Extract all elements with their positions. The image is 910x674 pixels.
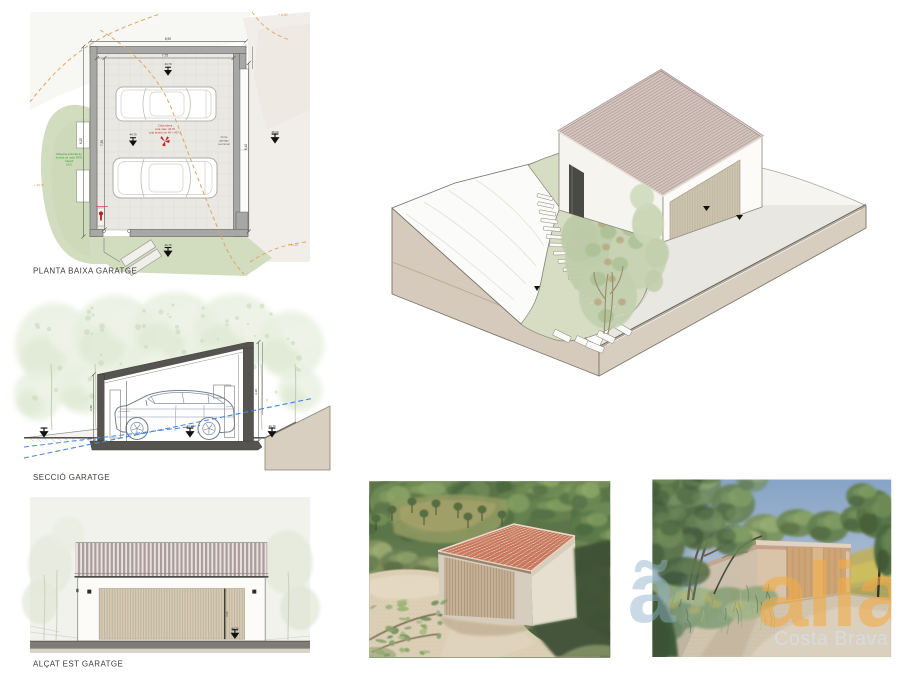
svg-text:8,90: 8,90 [165,37,171,41]
svg-text:7,30: 7,30 [100,140,104,146]
svg-text:44,70: 44,70 [187,424,194,428]
svg-text:6,40: 6,40 [244,144,248,150]
svg-text:seccional: seccional [218,142,230,146]
svg-text:44,70: 44,70 [165,243,172,247]
svg-text:cota àmbit mín 46 + 437,5: cota àmbit mín 46 + 437,5 [149,131,182,135]
svg-text:2,50: 2,50 [89,405,93,411]
svg-text:3,20: 3,20 [254,389,258,395]
svg-text:Costa Brava: Costa Brava [774,628,889,650]
svg-text:45,00: 45,00 [272,130,279,134]
svg-text:44,70: 44,70 [165,62,172,66]
svg-text:44,70: 44,70 [269,424,276,428]
svg-text:6,20: 6,20 [79,138,83,144]
svg-text:+ 4.00: + 4.00 [278,13,288,17]
svg-text:ã: ã [628,545,677,641]
svg-text:7,75: 7,75 [162,54,168,58]
svg-text:44,70: 44,70 [130,133,137,137]
svg-text:ACS: ACS [66,163,72,167]
svg-text:2,20: 2,20 [225,611,229,617]
svg-text:rf: rf [676,545,738,641]
svg-text:44,70: 44,70 [231,627,238,631]
svg-text:SECCIÓ GARATGE: SECCIÓ GARATGE [33,473,110,482]
svg-text:PLANTA BAIXA GARATGE: PLANTA BAIXA GARATGE [33,267,137,276]
svg-text:ALÇAT EST GARATGE: ALÇAT EST GARATGE [33,660,123,669]
svg-text:+ 45,20: + 45,20 [288,243,298,247]
svg-text:+ 46,70: + 46,70 [34,183,44,187]
